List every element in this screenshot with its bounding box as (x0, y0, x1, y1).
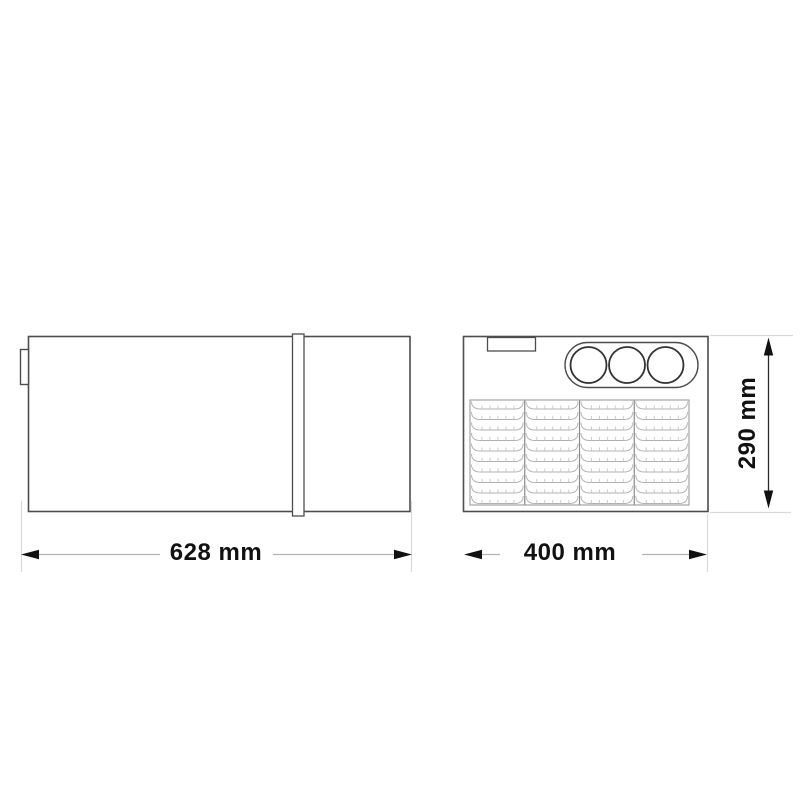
knob-panel (565, 343, 698, 388)
dimension-arrow-right (689, 550, 707, 559)
side-view-body (29, 337, 411, 512)
technical-drawing (0, 0, 800, 800)
dimension-arrow-up (764, 338, 773, 356)
dimension-arrow-left (464, 550, 482, 559)
dimension-width-label: 400 mm (524, 539, 616, 567)
dimension-height-label: 290 mm (734, 377, 762, 469)
dimension-arrow-left (21, 550, 39, 559)
side-view-divider-band (293, 334, 305, 516)
dimension-length-label: 628 mm (170, 539, 262, 567)
product-drawing-canvas: 628 mm 400 mm 290 mm (0, 0, 800, 800)
ventilation-grille (470, 400, 689, 505)
front-view-vent-slot (488, 338, 536, 352)
knob-2 (609, 347, 645, 383)
side-view-mounting-tab (21, 350, 29, 385)
dimension-arrow-right (394, 550, 412, 559)
knob-3 (648, 347, 684, 383)
side-view (21, 334, 411, 516)
knob-1 (571, 347, 607, 383)
front-view (464, 337, 709, 512)
dimension-arrow-down (764, 491, 773, 509)
